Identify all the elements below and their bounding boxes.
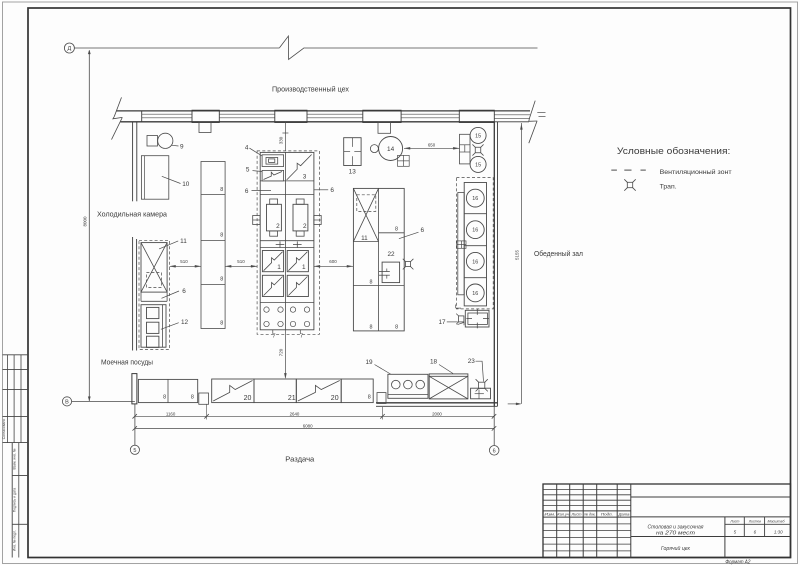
svg-text:5: 5 [246, 167, 250, 174]
svg-text:5155: 5155 [515, 249, 520, 260]
svg-text:Д: Д [68, 46, 72, 52]
svg-text:2: 2 [276, 223, 280, 230]
svg-text:Согласовано: Согласовано [2, 419, 6, 440]
svg-text:Раздача: Раздача [285, 457, 314, 464]
svg-text:6080: 6080 [303, 423, 313, 428]
svg-text:720: 720 [279, 348, 284, 356]
svg-text:22: 22 [387, 251, 395, 258]
svg-text:1160: 1160 [166, 411, 176, 416]
svg-text:В: В [65, 399, 69, 405]
svg-text:17: 17 [438, 319, 446, 326]
svg-text:Масштаб: Масштаб [768, 519, 786, 523]
svg-text:Холодильная камера: Холодильная камера [97, 212, 167, 219]
svg-text:20: 20 [244, 395, 252, 402]
svg-text:Трап.: Трап. [660, 183, 677, 190]
svg-text:на 270 мест: на 270 мест [656, 531, 695, 537]
svg-text:Условные обозначения:: Условные обозначения: [617, 146, 731, 157]
svg-text:Изм.: Изм. [544, 513, 555, 517]
svg-text:Формат А2: Формат А2 [725, 559, 750, 565]
svg-text:8: 8 [395, 226, 398, 232]
svg-text:21: 21 [288, 395, 296, 402]
svg-text:Производственный цех: Производственный цех [272, 86, 350, 94]
svg-text:Подпись и дата: Подпись и дата [13, 488, 17, 513]
svg-text:18: 18 [430, 359, 438, 366]
svg-text:15: 15 [475, 163, 481, 169]
svg-text:8: 8 [370, 325, 373, 331]
svg-text:330: 330 [279, 136, 284, 144]
svg-text:10: 10 [182, 181, 190, 188]
svg-text:23: 23 [468, 358, 476, 365]
svg-text:8: 8 [220, 276, 223, 282]
svg-text:Листов: Листов [748, 519, 761, 523]
svg-text:16: 16 [472, 259, 478, 265]
svg-text:6: 6 [245, 188, 249, 195]
svg-text:6: 6 [421, 227, 425, 234]
svg-text:16: 16 [472, 291, 478, 297]
svg-text:Обеденный зал: Обеденный зал [534, 250, 583, 258]
svg-text:№ док.: № док. [584, 513, 596, 517]
svg-text:1: 1 [277, 264, 281, 271]
svg-text:7: 7 [272, 334, 275, 340]
svg-text:8: 8 [220, 320, 223, 326]
svg-text:8: 8 [220, 233, 223, 239]
svg-text:Подп.: Подп. [601, 513, 613, 517]
svg-text:8: 8 [395, 325, 398, 331]
svg-text:Инв. № подл.: Инв. № подл. [13, 530, 17, 551]
svg-text:600: 600 [329, 259, 337, 264]
svg-text:11: 11 [361, 235, 368, 242]
svg-text:2000: 2000 [432, 411, 442, 416]
svg-text:8000: 8000 [83, 216, 88, 227]
svg-text:1:30: 1:30 [774, 529, 783, 534]
svg-text:Лист: Лист [729, 519, 739, 523]
svg-text:15: 15 [475, 134, 481, 140]
svg-text:Лист: Лист [570, 513, 581, 517]
svg-text:9: 9 [180, 143, 184, 150]
svg-text:8: 8 [191, 395, 194, 401]
svg-text:11: 11 [180, 238, 187, 245]
svg-text:20: 20 [331, 395, 339, 402]
svg-text:Дата: Дата [617, 513, 629, 517]
svg-text:16: 16 [472, 228, 478, 234]
svg-text:14: 14 [387, 146, 395, 153]
svg-text:Столовая и закусочная: Столовая и закусочная [648, 525, 704, 531]
svg-text:510: 510 [180, 259, 188, 264]
svg-text:2640: 2640 [290, 411, 300, 416]
svg-text:1: 1 [302, 264, 306, 271]
svg-text:4: 4 [245, 145, 249, 152]
svg-text:6: 6 [493, 449, 496, 455]
svg-text:8: 8 [163, 395, 166, 401]
svg-text:Вентиляционный зонт: Вентиляционный зонт [660, 168, 732, 176]
svg-text:6: 6 [330, 187, 334, 194]
svg-text:650: 650 [428, 142, 436, 147]
svg-text:Взам. инв. №: Взам. инв. № [13, 448, 17, 469]
svg-text:8: 8 [220, 187, 223, 193]
svg-text:2: 2 [303, 223, 307, 230]
svg-text:Моечная посуды: Моечная посуды [101, 360, 153, 367]
svg-text:8: 8 [368, 395, 371, 401]
svg-text:12: 12 [181, 319, 189, 326]
svg-text:3: 3 [303, 174, 307, 181]
svg-text:8: 8 [370, 279, 373, 285]
svg-text:510: 510 [237, 259, 245, 264]
svg-text:Горячий цех: Горячий цех [661, 545, 691, 552]
svg-text:5: 5 [133, 448, 136, 454]
svg-text:13: 13 [349, 169, 357, 176]
svg-text:6: 6 [182, 288, 186, 295]
svg-text:7: 7 [300, 334, 303, 340]
svg-text:16: 16 [472, 196, 478, 202]
svg-text:19: 19 [365, 359, 373, 366]
svg-text:Кол.уч: Кол.уч [557, 513, 569, 517]
